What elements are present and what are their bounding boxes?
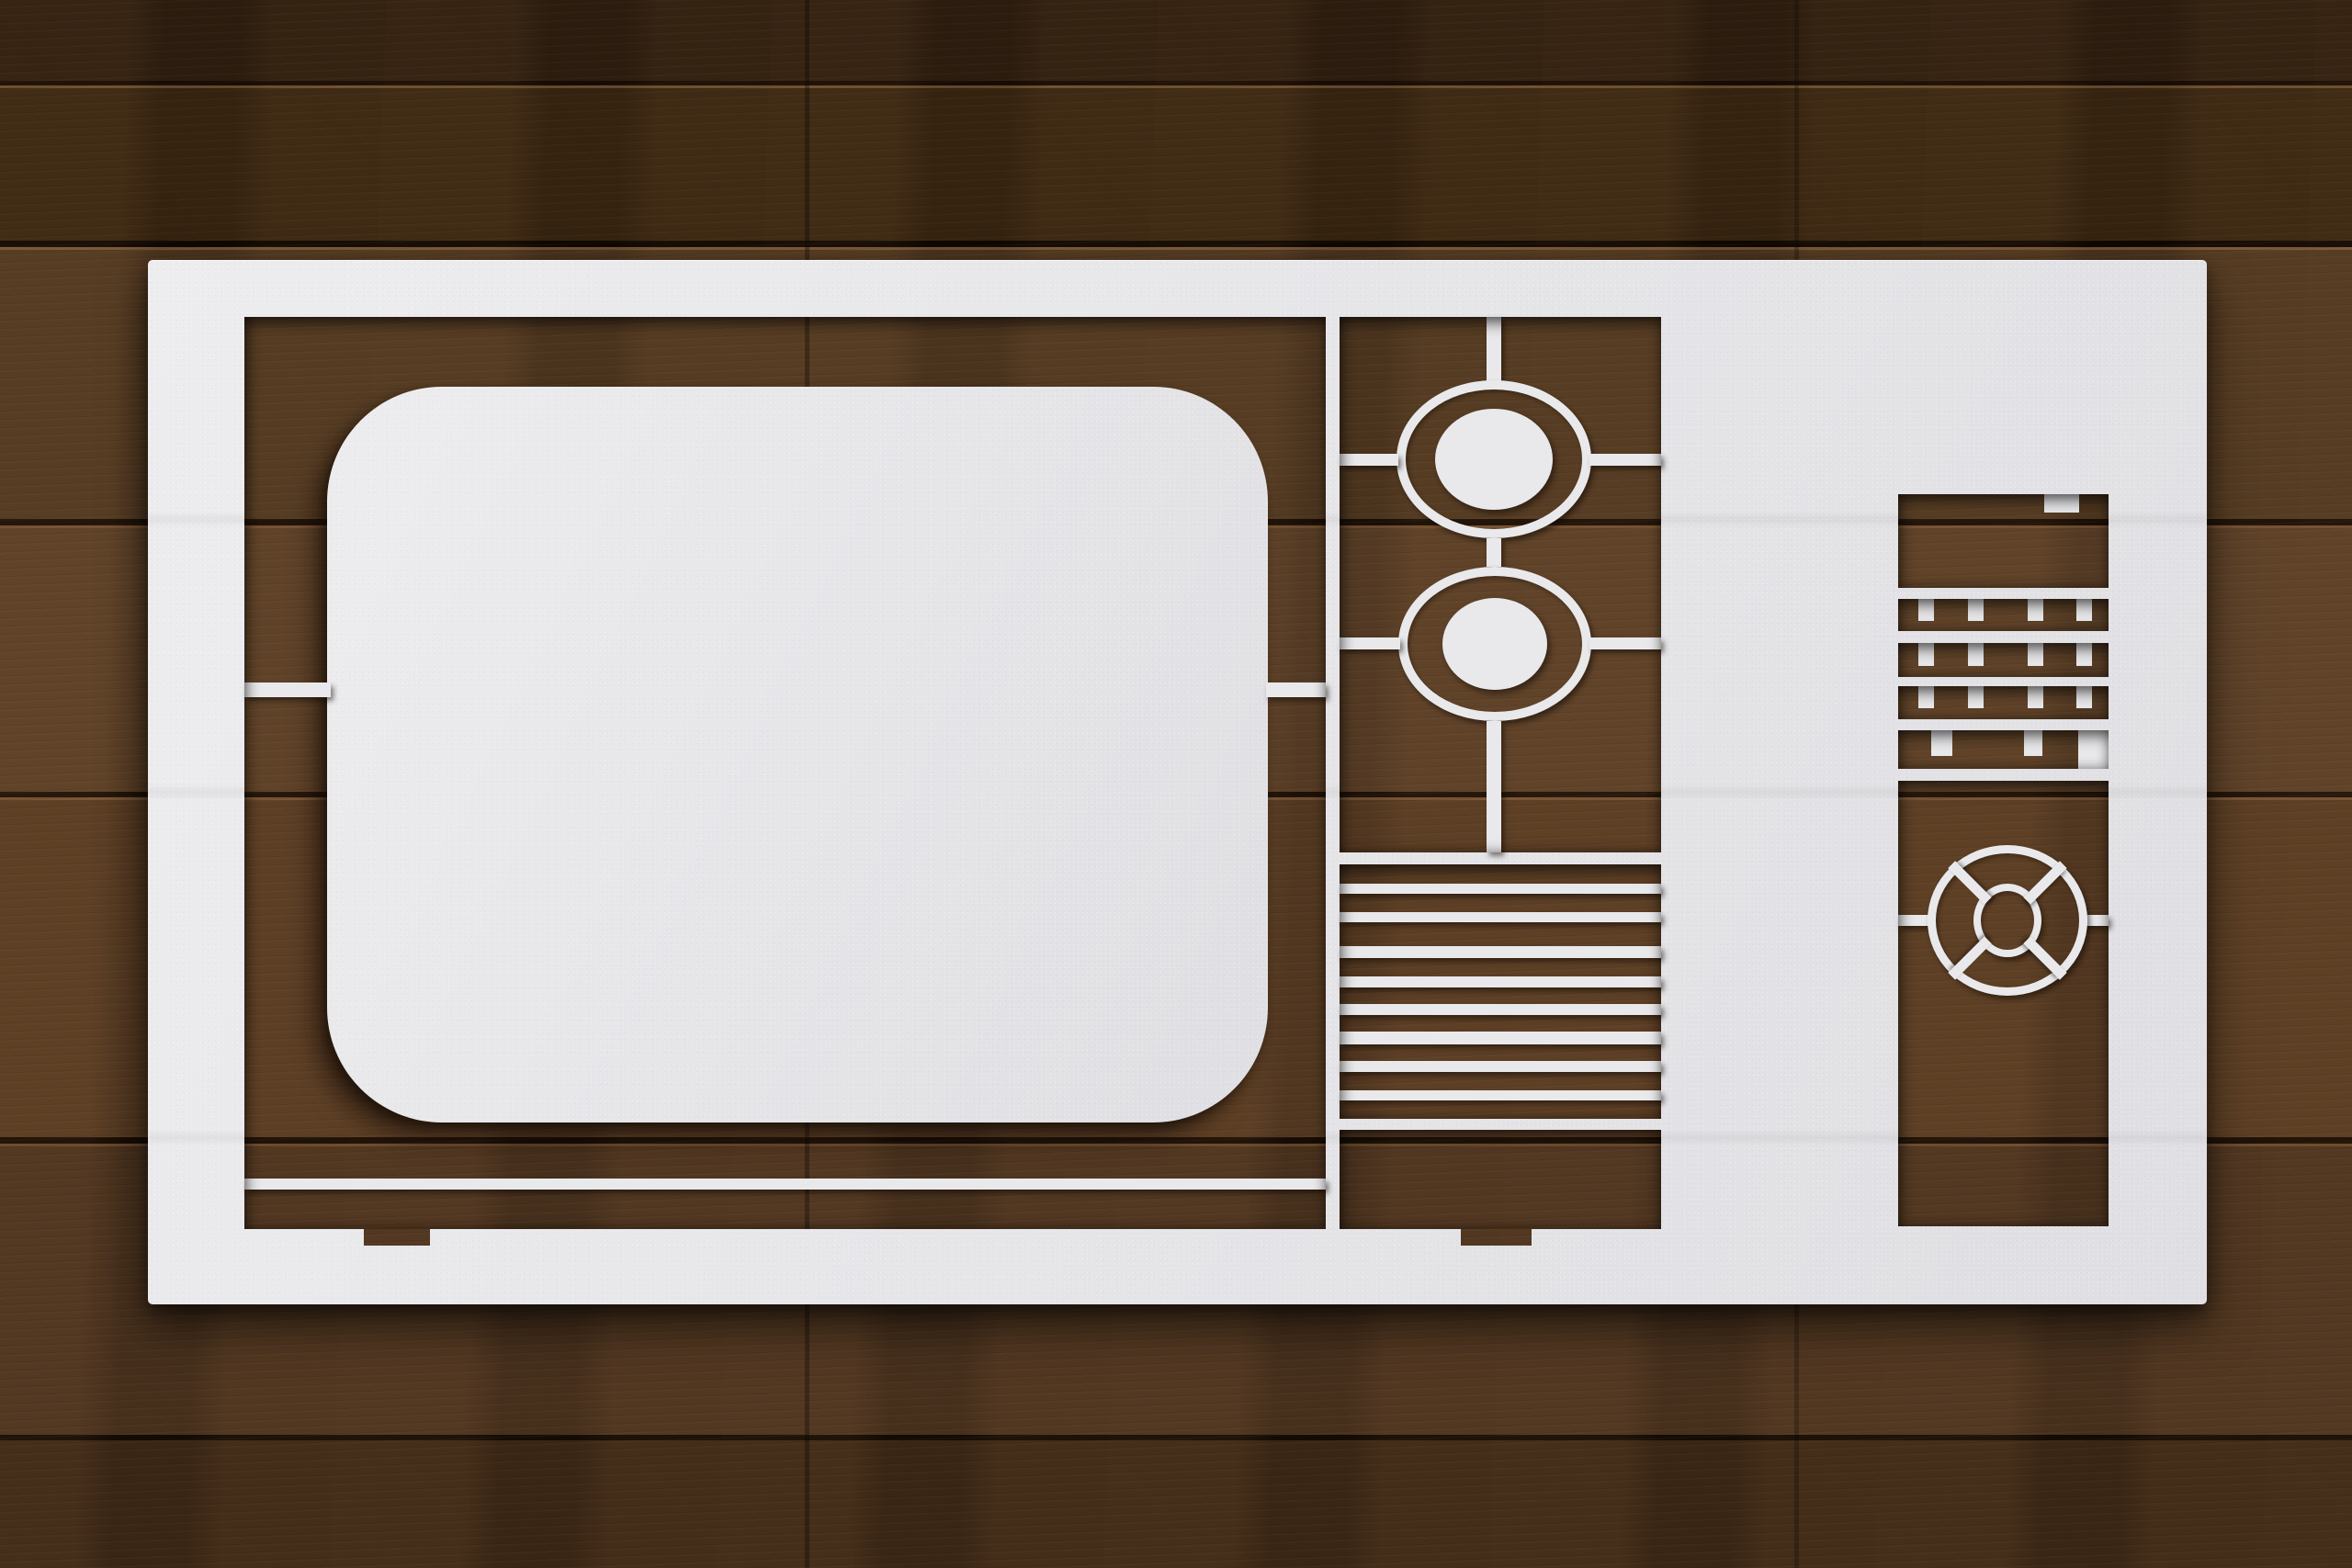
tv-foot-left-cutout: [364, 1229, 430, 1246]
grille-line: [1340, 946, 1661, 958]
comb-tooth: [2028, 599, 2043, 621]
comb-tooth: [2078, 730, 2109, 769]
base-divider-line: [244, 1179, 1326, 1190]
comb-tooth: [1968, 686, 1984, 708]
knob-panel-cutout: [1340, 317, 1661, 852]
comb-tooth: [2076, 599, 2092, 621]
comb-tooth: [2028, 686, 2043, 708]
comb-tooth: [2028, 643, 2043, 666]
side-panel-top-block: [1898, 494, 2109, 588]
comb-tooth: [1931, 730, 1952, 756]
comb-tooth: [1918, 643, 1934, 666]
knob-bar-left-lower: [1340, 637, 1400, 649]
tv-foot-right-cutout: [1461, 1229, 1532, 1246]
knob-center-lower: [1442, 598, 1547, 690]
knob-stem-bottom: [1487, 721, 1501, 852]
comb-row: [1898, 730, 2109, 769]
comb-tooth: [1968, 643, 1984, 666]
stencil-photo: [0, 0, 2352, 1568]
comb-tooth: [1918, 599, 1934, 621]
comb-row: [1898, 686, 2109, 719]
side-panel-top-notch: [2044, 494, 2079, 513]
knob-stem-top: [1487, 317, 1501, 381]
grille-line: [1340, 1032, 1661, 1044]
grille-line: [1340, 1004, 1661, 1015]
grille-line: [1340, 1090, 1661, 1100]
comb-row: [1898, 599, 2109, 631]
dial-panel-cutout: [1898, 781, 2109, 1226]
comb-tooth: [2076, 643, 2092, 666]
speaker-base-cutout: [1340, 1130, 1661, 1229]
comb-tooth: [2076, 686, 2092, 708]
comb-tooth: [1968, 599, 1984, 621]
grille-line: [1340, 884, 1661, 894]
screen-bridge-left: [244, 682, 331, 697]
comb-tooth: [2024, 730, 2042, 756]
knob-stem-middle: [1487, 538, 1501, 567]
comb-row: [1898, 643, 2109, 677]
knob-bar-right-upper: [1589, 454, 1661, 466]
tv-body-cutout: [244, 317, 1326, 1229]
knob-bar-left-upper: [1340, 454, 1398, 466]
tv-screen-piece: [327, 387, 1268, 1122]
knob-bar-right-lower: [1589, 637, 1661, 649]
grille-line: [1340, 976, 1661, 987]
speaker-grille-cutout: [1340, 864, 1661, 1119]
comb-tooth: [1918, 686, 1934, 708]
grille-line: [1340, 1061, 1661, 1072]
knob-center-upper: [1435, 409, 1553, 510]
screen-bridge-right: [1266, 682, 1326, 697]
grille-line: [1340, 912, 1661, 922]
